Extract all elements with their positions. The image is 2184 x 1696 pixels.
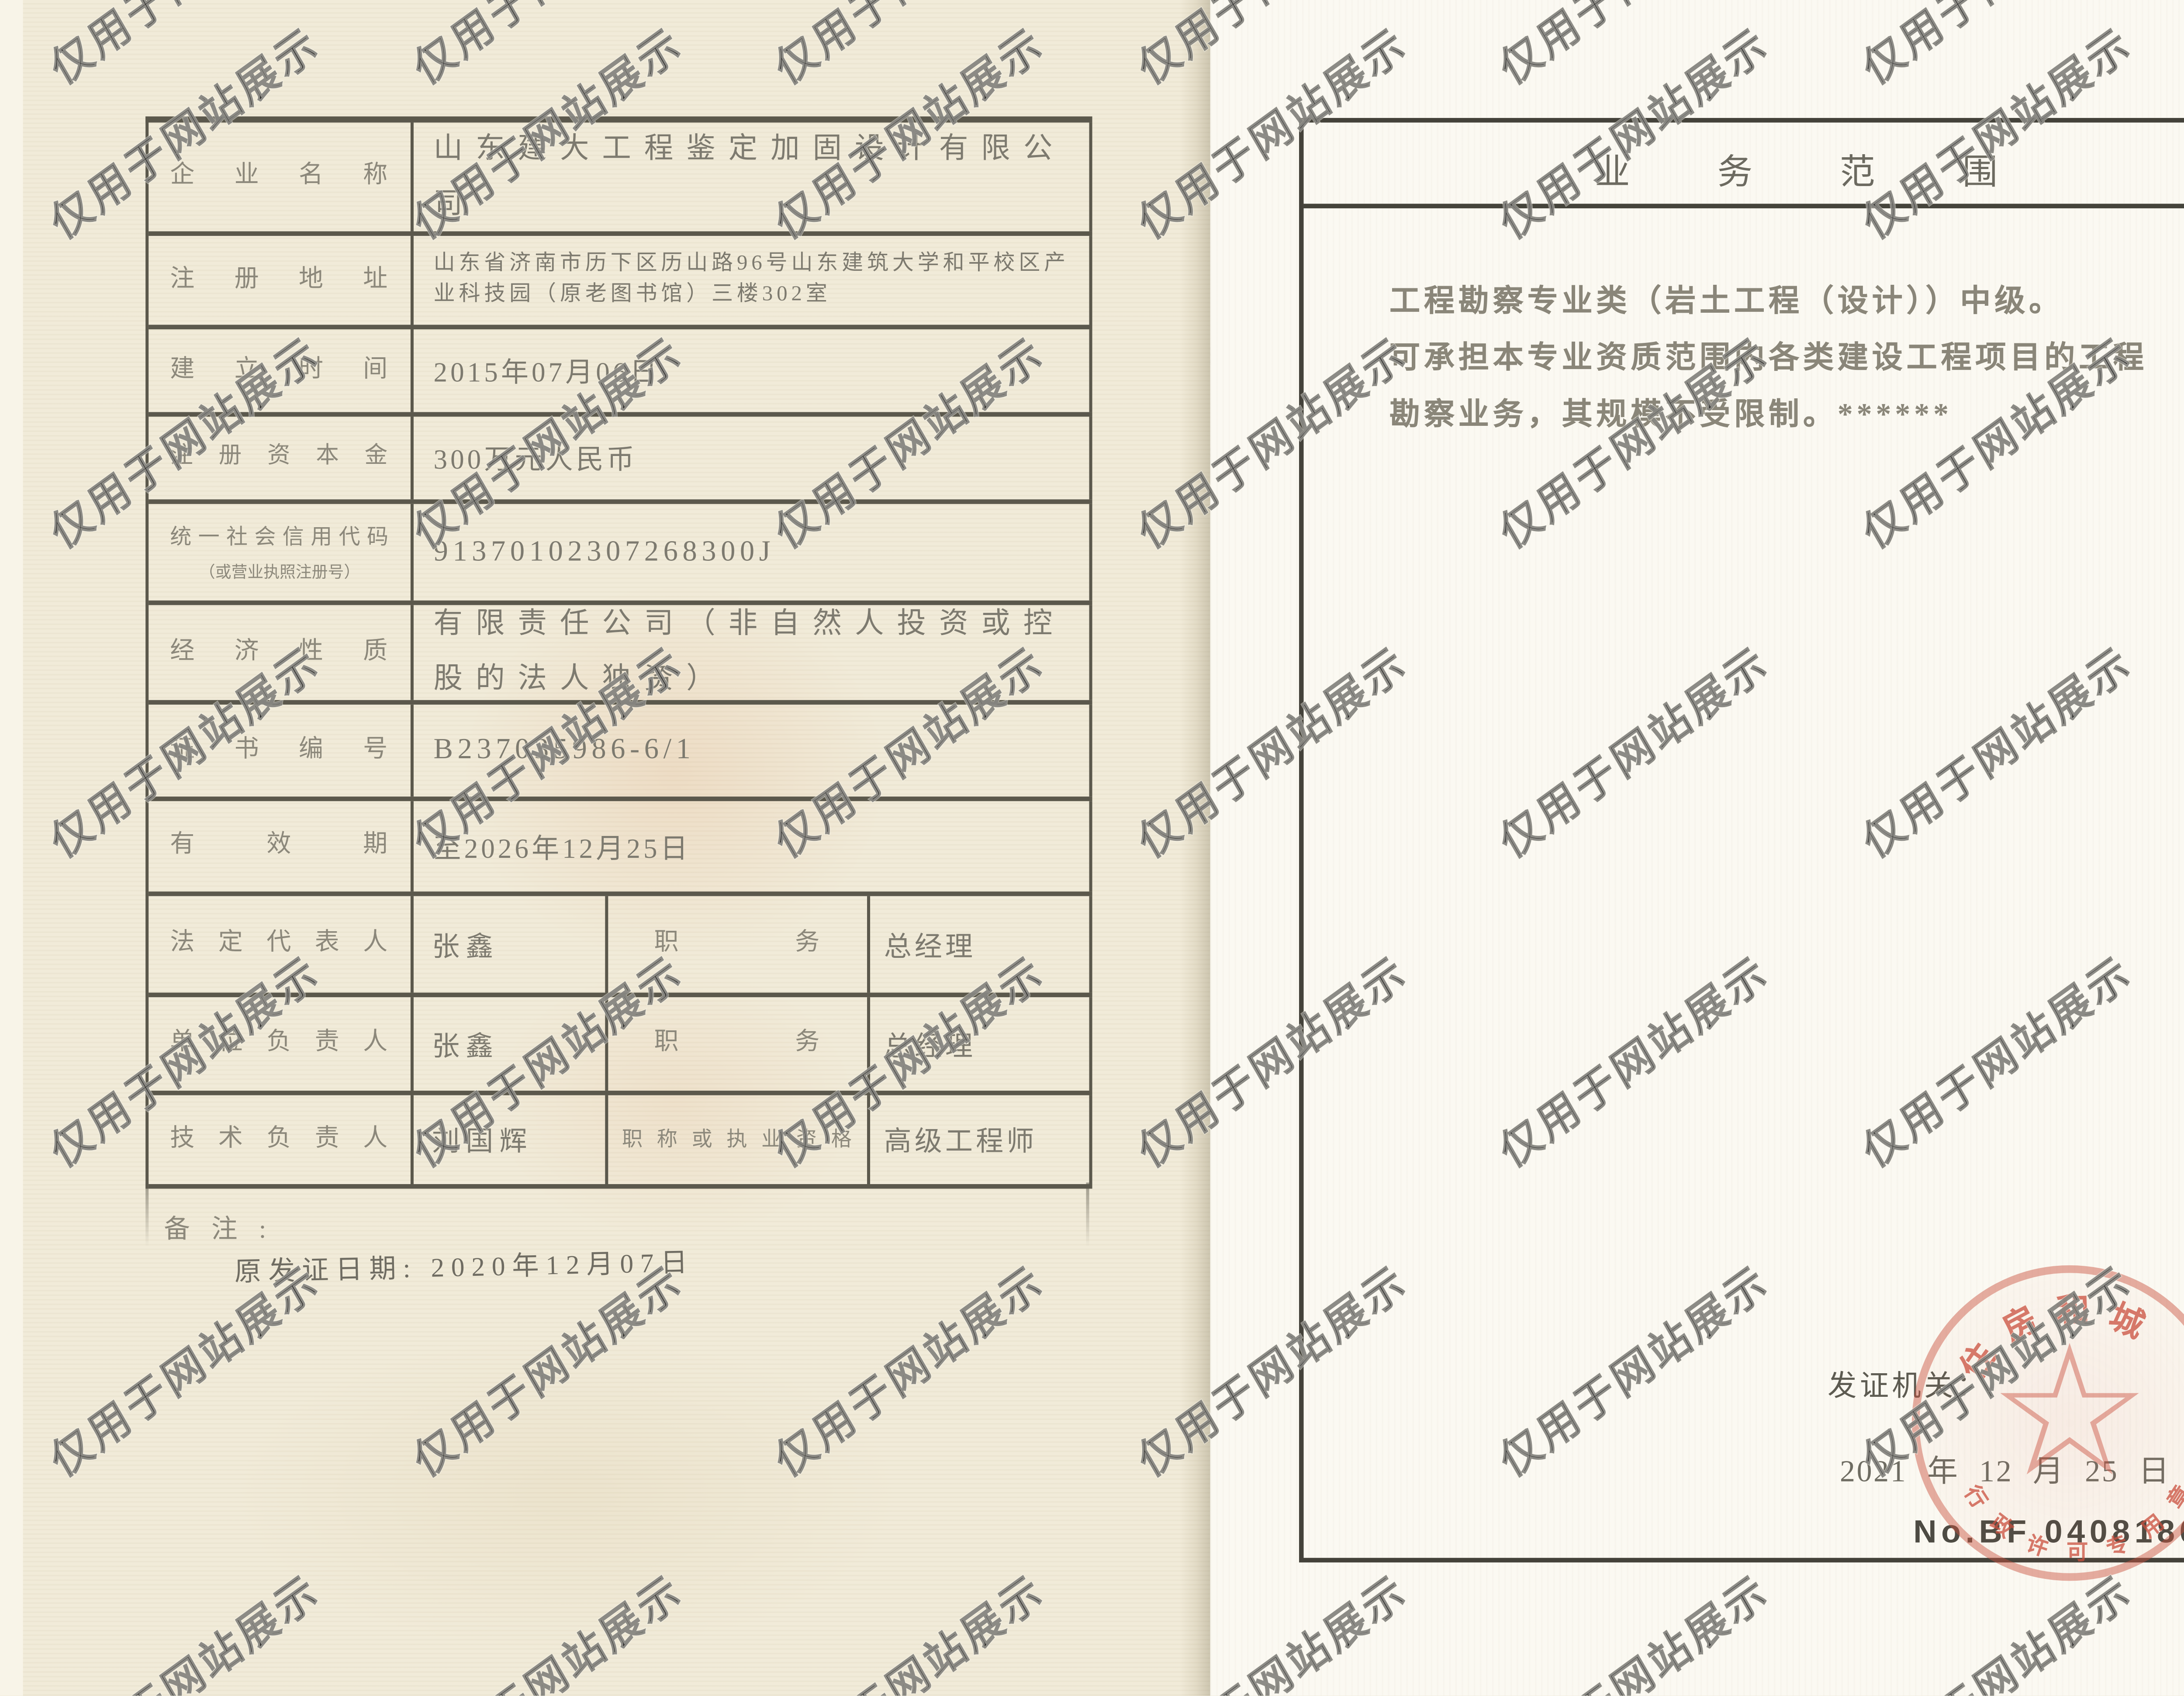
seal-arc-character: 可: [2067, 1537, 2088, 1567]
field-label-cell: 证书编号: [149, 705, 414, 796]
original-issue-date: 原发证日期: 2020年12月07日: [234, 1242, 695, 1290]
table-row: 注册地址 山东省济南市历下区历山路96号山东建筑大学和平校区产业科技园（原老图书…: [149, 236, 1092, 329]
scope-line: 可承担本专业资质范围内各类建设工程项目的工程: [1389, 331, 2184, 388]
field-value-cell: 至2026年12月25日: [414, 801, 1092, 891]
field-label-cell: 注册资本金: [149, 417, 414, 499]
table-row: 经济性质 有限责任公司（非自然人投资或控股的法人独资）: [149, 605, 1092, 705]
remarks-label: 备注:: [164, 1207, 287, 1246]
field-label: 经济性质: [170, 637, 389, 669]
left-page-scan: 企业名称 山东建大工程鉴定加固设计有限公司 注册地址 山东省济南市历下区历山路9…: [0, 0, 1210, 1696]
person-name-cell: 张鑫: [414, 997, 608, 1091]
scope-line: 勘察业务，其规模不受限制。******: [1389, 387, 2184, 444]
field-value-cell: 300万元人民币: [414, 417, 1092, 499]
table-row: 企业名称 山东建大工程鉴定加固设计有限公司: [149, 123, 1092, 236]
table-row: 证书编号 B237035986-6/1: [149, 705, 1092, 801]
field-label-cell: 统一社会信用代码 （或营业执照注册号）: [149, 504, 414, 601]
certificate-scan: 企业名称 山东建大工程鉴定加固设计有限公司 注册地址 山东省济南市历下区历山路9…: [0, 0, 2184, 1696]
certificate-number-value: B237035986-6/1: [434, 734, 695, 767]
credit-code-value: 91370102307268300J: [434, 535, 775, 569]
ink-bleed-stain: [230, 1333, 904, 1654]
field-value-cell: 2015年07月06日: [414, 329, 1092, 412]
credit-code-sublabel: （或营业执照注册号）: [170, 561, 389, 584]
field-label-cell: 职务: [608, 997, 870, 1091]
seal-star-icon: ☆: [1989, 1324, 2151, 1505]
field-label: 注册地址: [170, 264, 389, 296]
field-value-cell: 高级工程师: [870, 1095, 1092, 1184]
scan-left-edge: [0, 0, 23, 1696]
establish-date-value: 2015年07月06日: [434, 351, 660, 390]
business-scope-title: 业务范围: [1304, 142, 2184, 194]
field-label-cell: 有效期: [149, 801, 414, 891]
field-value-cell: 总经理: [870, 896, 1092, 993]
company-name-value: 山东建大工程鉴定加固设计有限公司: [434, 122, 1086, 232]
field-label-cell: 单位负责人: [149, 997, 414, 1091]
person-name: 刘国辉: [432, 1120, 533, 1160]
field-label: 技术负责人: [170, 1124, 389, 1156]
field-label: 职称或执业资格: [622, 1126, 854, 1153]
field-label: 证书编号: [170, 735, 389, 767]
field-value-cell: 总经理: [870, 997, 1092, 1091]
title-value: 高级工程师: [884, 1120, 1037, 1160]
remarks-area: 备注: 原发证日期: 2020年12月07日: [145, 1182, 1089, 1358]
field-label: 有效期: [170, 830, 389, 862]
seal-arc-character: 许: [2023, 1527, 2053, 1563]
field-label: 职务: [654, 929, 821, 960]
field-value-cell: B237035986-6/1: [414, 705, 1092, 796]
business-scope-text: 工程勘察专业类（岩土工程（设计））中级。 可承担本专业资质范围内各类建设工程项目…: [1389, 274, 2184, 444]
field-label-cell: 法定代表人: [149, 896, 414, 993]
table-row: 法定代表人 张鑫 职务 总经理: [149, 896, 1092, 997]
title-rule: [1304, 204, 2184, 208]
table-row: 有效期 至2026年12月25日: [149, 801, 1092, 896]
economic-type-value: 有限责任公司（非自然人投资或控股的法人独资）: [434, 598, 1086, 708]
field-value-cell: 91370102307268300J: [414, 504, 1092, 601]
table-row: 单位负责人 张鑫 职务 总经理: [149, 997, 1092, 1095]
field-label: 单位负责人: [170, 1028, 389, 1060]
scope-line: 工程勘察专业类（岩土工程（设计））中级。: [1389, 274, 2184, 331]
table-border-fade: [145, 1182, 149, 1247]
table-row: 技术负责人 刘国辉 职称或执业资格 高级工程师: [149, 1095, 1092, 1189]
person-name: 张鑫: [432, 1024, 499, 1064]
field-label: 职务: [654, 1028, 821, 1060]
field-value-cell: 有限责任公司（非自然人投资或控股的法人独资）: [414, 605, 1092, 700]
field-label-cell: 技术负责人: [149, 1095, 414, 1184]
field-label: 建立时间: [170, 355, 389, 387]
field-label-cell: 建立时间: [149, 329, 414, 412]
field-label: 统一社会信用代码 （或营业执照注册号）: [170, 521, 389, 584]
field-label: 注册资本金: [170, 443, 389, 473]
person-name: 张鑫: [432, 925, 499, 964]
table-row: 统一社会信用代码 （或营业执照注册号） 91370102307268300J: [149, 504, 1092, 605]
field-label: 法定代表人: [170, 929, 389, 960]
field-label-cell: 职称或执业资格: [608, 1095, 870, 1184]
position-value: 总经理: [884, 925, 976, 964]
field-label-cell: 经济性质: [149, 605, 414, 700]
field-label-cell: 注册地址: [149, 236, 414, 325]
field-label-cell: 企业名称: [149, 123, 414, 231]
seal-arc-character: 和: [2055, 1283, 2091, 1333]
company-info-table: 企业名称 山东建大工程鉴定加固设计有限公司 注册地址 山东省济南市历下区历山路9…: [145, 117, 1092, 1189]
table-row: 建立时间 2015年07月06日: [149, 329, 1092, 417]
field-label-cell: 职务: [608, 896, 870, 993]
table-row: 注册资本金 300万元人民币: [149, 417, 1092, 504]
person-name-cell: 张鑫: [414, 896, 608, 993]
field-label: 企业名称: [170, 161, 389, 193]
seal-arc-character: 章: [2160, 1479, 2184, 1514]
validity-value: 至2026年12月25日: [434, 826, 691, 866]
credit-code-label: 统一社会信用代码: [170, 521, 389, 551]
field-value-cell: 山东建大工程鉴定加固设计有限公司: [414, 123, 1092, 231]
seal-arc-character: 专: [2101, 1527, 2132, 1563]
person-name-cell: 刘国辉: [414, 1095, 608, 1184]
position-value: 总经理: [884, 1024, 976, 1064]
page-fold-shadow: [1179, 0, 1210, 1696]
table-border-fade: [1086, 1182, 1089, 1247]
field-value-cell: 山东省济南市历下区历山路96号山东建筑大学和平校区产业科技园（原老图书馆）三楼3…: [414, 236, 1092, 325]
capital-value: 300万元人民币: [434, 438, 637, 478]
address-value: 山东省济南市历下区历山路96号山东建筑大学和平校区产业科技园（原老图书馆）三楼3…: [434, 250, 1086, 311]
